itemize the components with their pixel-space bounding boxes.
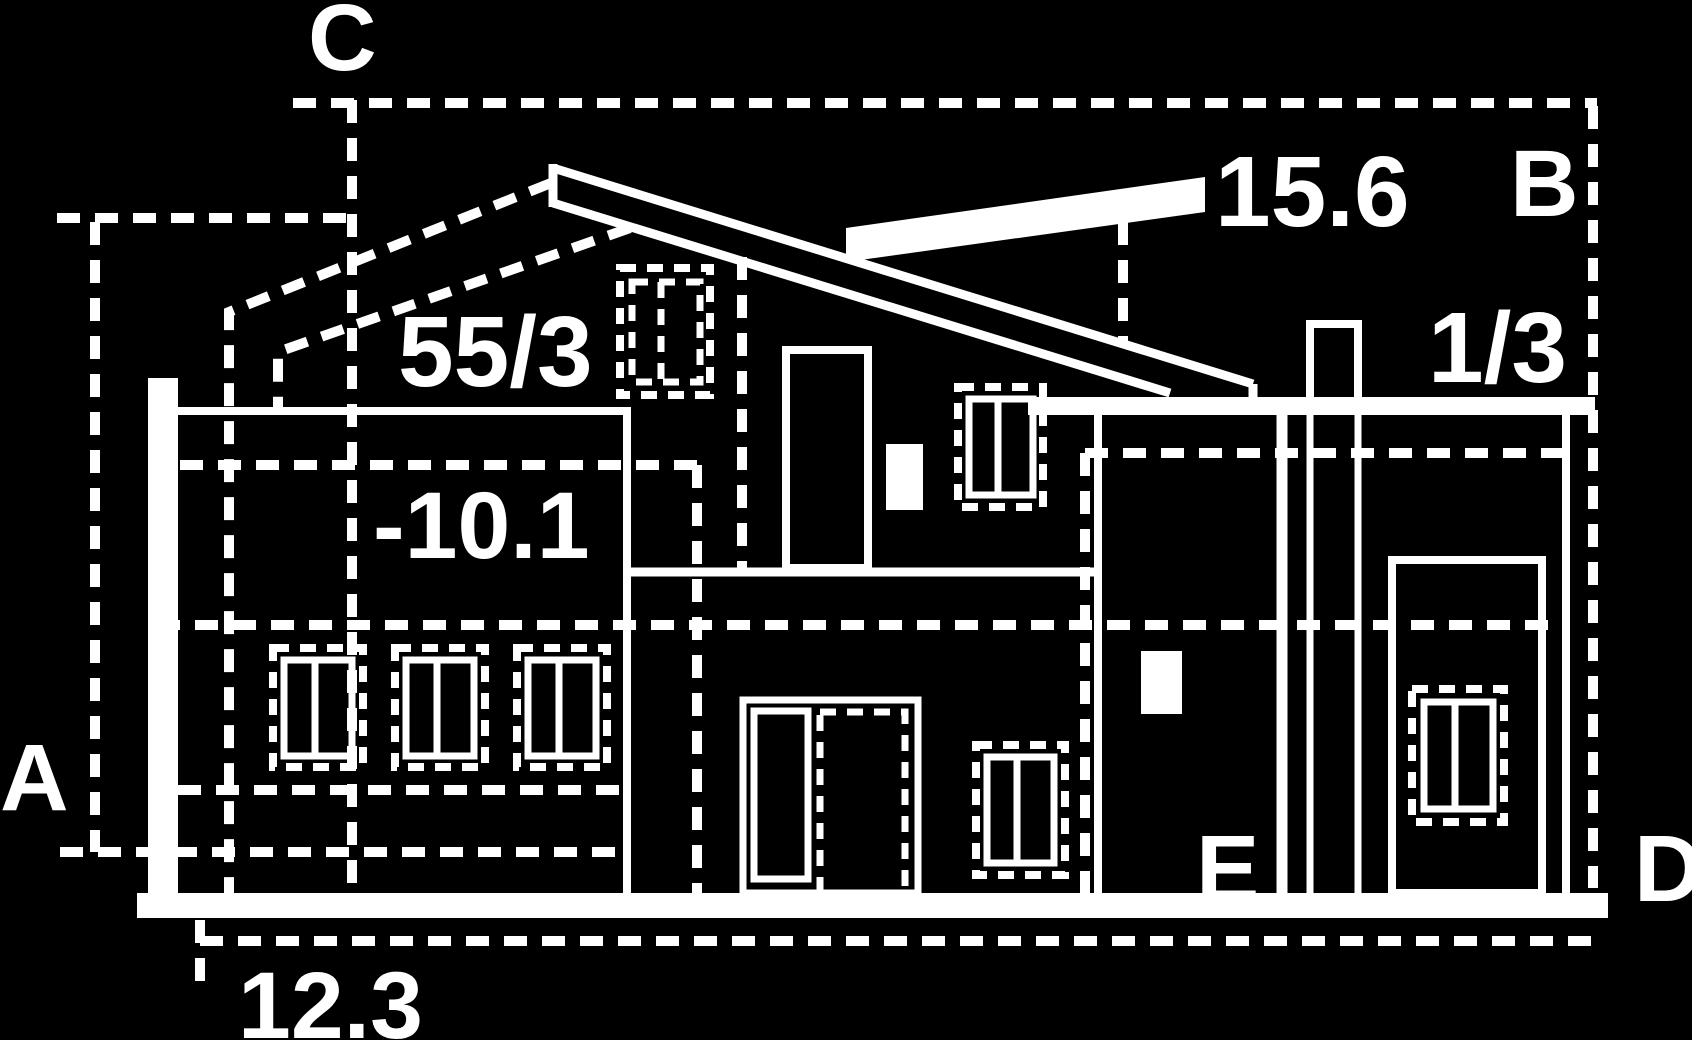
measurement-gable: 55/3 [398, 296, 593, 408]
ref-label-d: D [1634, 816, 1692, 922]
measurement-ratio: 1/3 [1428, 292, 1567, 404]
left-window-2 [395, 648, 485, 767]
measurement-base-width: 12.3 [238, 953, 423, 1040]
drawing-background [0, 0, 1692, 1040]
middle-lower-window [976, 745, 1065, 875]
base-slab [137, 893, 1608, 918]
ref-label-b: B [1510, 131, 1579, 237]
ref-label-c: C [308, 0, 377, 91]
middle-upper-window [958, 387, 1043, 507]
ref-label-e: E [1196, 816, 1259, 922]
measurement-roof-panel: 15.6 [1215, 136, 1410, 248]
wall-block-upper [886, 444, 923, 510]
left-wall-pillar [148, 378, 178, 895]
blueprint-canvas: C B A D E 15.6 1/3 55/3 -10.1 12.3 [0, 0, 1692, 1040]
wall-block-lower [1141, 651, 1182, 714]
ref-label-a: A [0, 725, 69, 831]
elevation-drawing: C B A D E 15.6 1/3 55/3 -10.1 12.3 [0, 0, 1692, 1040]
left-window-1 [273, 648, 363, 767]
measurement-level: -10.1 [373, 473, 590, 579]
left-window-3 [517, 648, 607, 767]
